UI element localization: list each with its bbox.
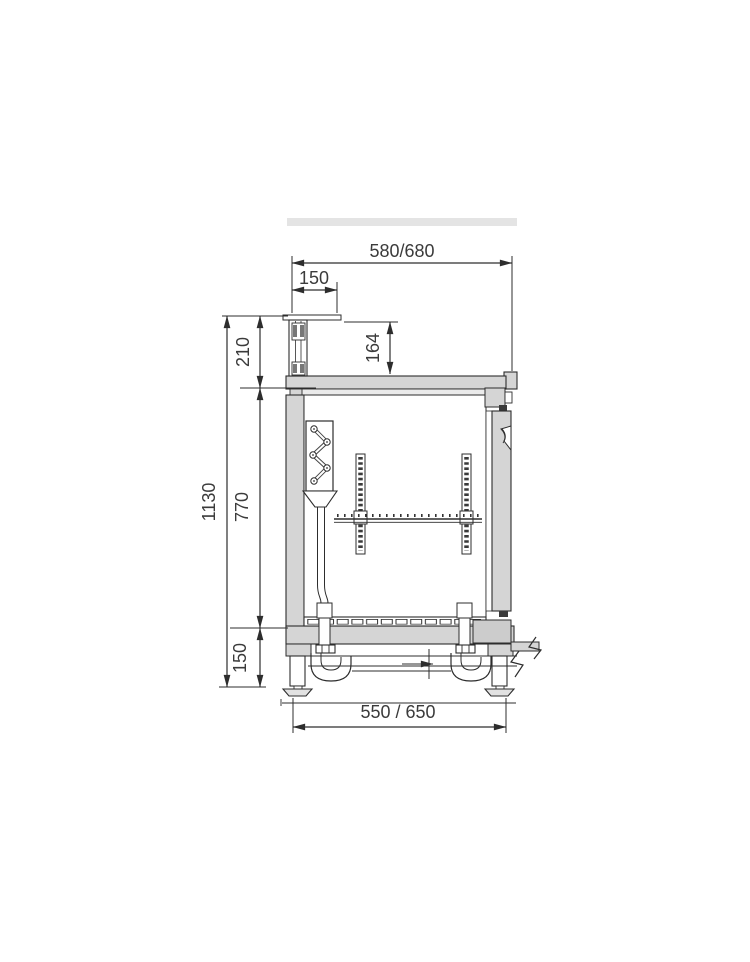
p-trap-left <box>311 653 351 681</box>
drain-collar-left <box>317 603 332 618</box>
dim-label-shelf-drop: 164 <box>363 333 383 363</box>
leg-left <box>290 656 305 686</box>
adjustable-foot-right <box>485 689 514 696</box>
dim-label-leg-height: 150 <box>230 643 250 673</box>
drain-nut-left <box>316 645 335 653</box>
drain-tube-right <box>459 618 470 645</box>
cross-section-drawing: 580/680 150 210 164 1130 770 150 550 / 6… <box>0 0 750 962</box>
technical-drawing-page: 580/680 150 210 164 1130 770 150 550 / 6… <box>0 0 750 962</box>
door-base-block <box>473 620 511 643</box>
door-top-hinge-block <box>485 388 505 407</box>
dim-label-top-width: 580/680 <box>369 241 434 261</box>
dim-label-total-height: 1130 <box>199 483 219 522</box>
top-accent-bar <box>287 218 517 226</box>
counter-structure <box>281 218 541 706</box>
dim-label-body-height: 770 <box>232 492 252 522</box>
dim-label-base-depth: 550 / 650 <box>360 702 435 722</box>
drain-right <box>457 603 472 645</box>
p-trap-right <box>451 653 491 681</box>
left-wall <box>286 395 304 628</box>
drain-collar-right <box>457 603 472 618</box>
rear-upstand <box>283 315 341 376</box>
worktop-slab <box>286 376 506 389</box>
adjustable-foot-left <box>283 689 312 696</box>
top-shelf-plate <box>283 315 341 320</box>
leg-mount-left <box>286 644 311 656</box>
door-bottom-gasket <box>499 611 508 617</box>
floor-grate-slats <box>307 619 483 625</box>
door-inner-gap <box>486 411 492 611</box>
door-top-gasket <box>499 405 507 411</box>
leg-right <box>492 656 507 686</box>
drain-tube-left <box>319 618 330 645</box>
dim-label-overhang: 150 <box>299 268 329 288</box>
worktop <box>286 372 517 398</box>
worktop-subframe <box>294 389 504 395</box>
dim-label-upstand-height: 210 <box>233 337 253 367</box>
outlet-pipe-gray <box>511 642 539 651</box>
leg-mount-right <box>488 644 513 656</box>
drain-nut-right <box>456 645 475 653</box>
